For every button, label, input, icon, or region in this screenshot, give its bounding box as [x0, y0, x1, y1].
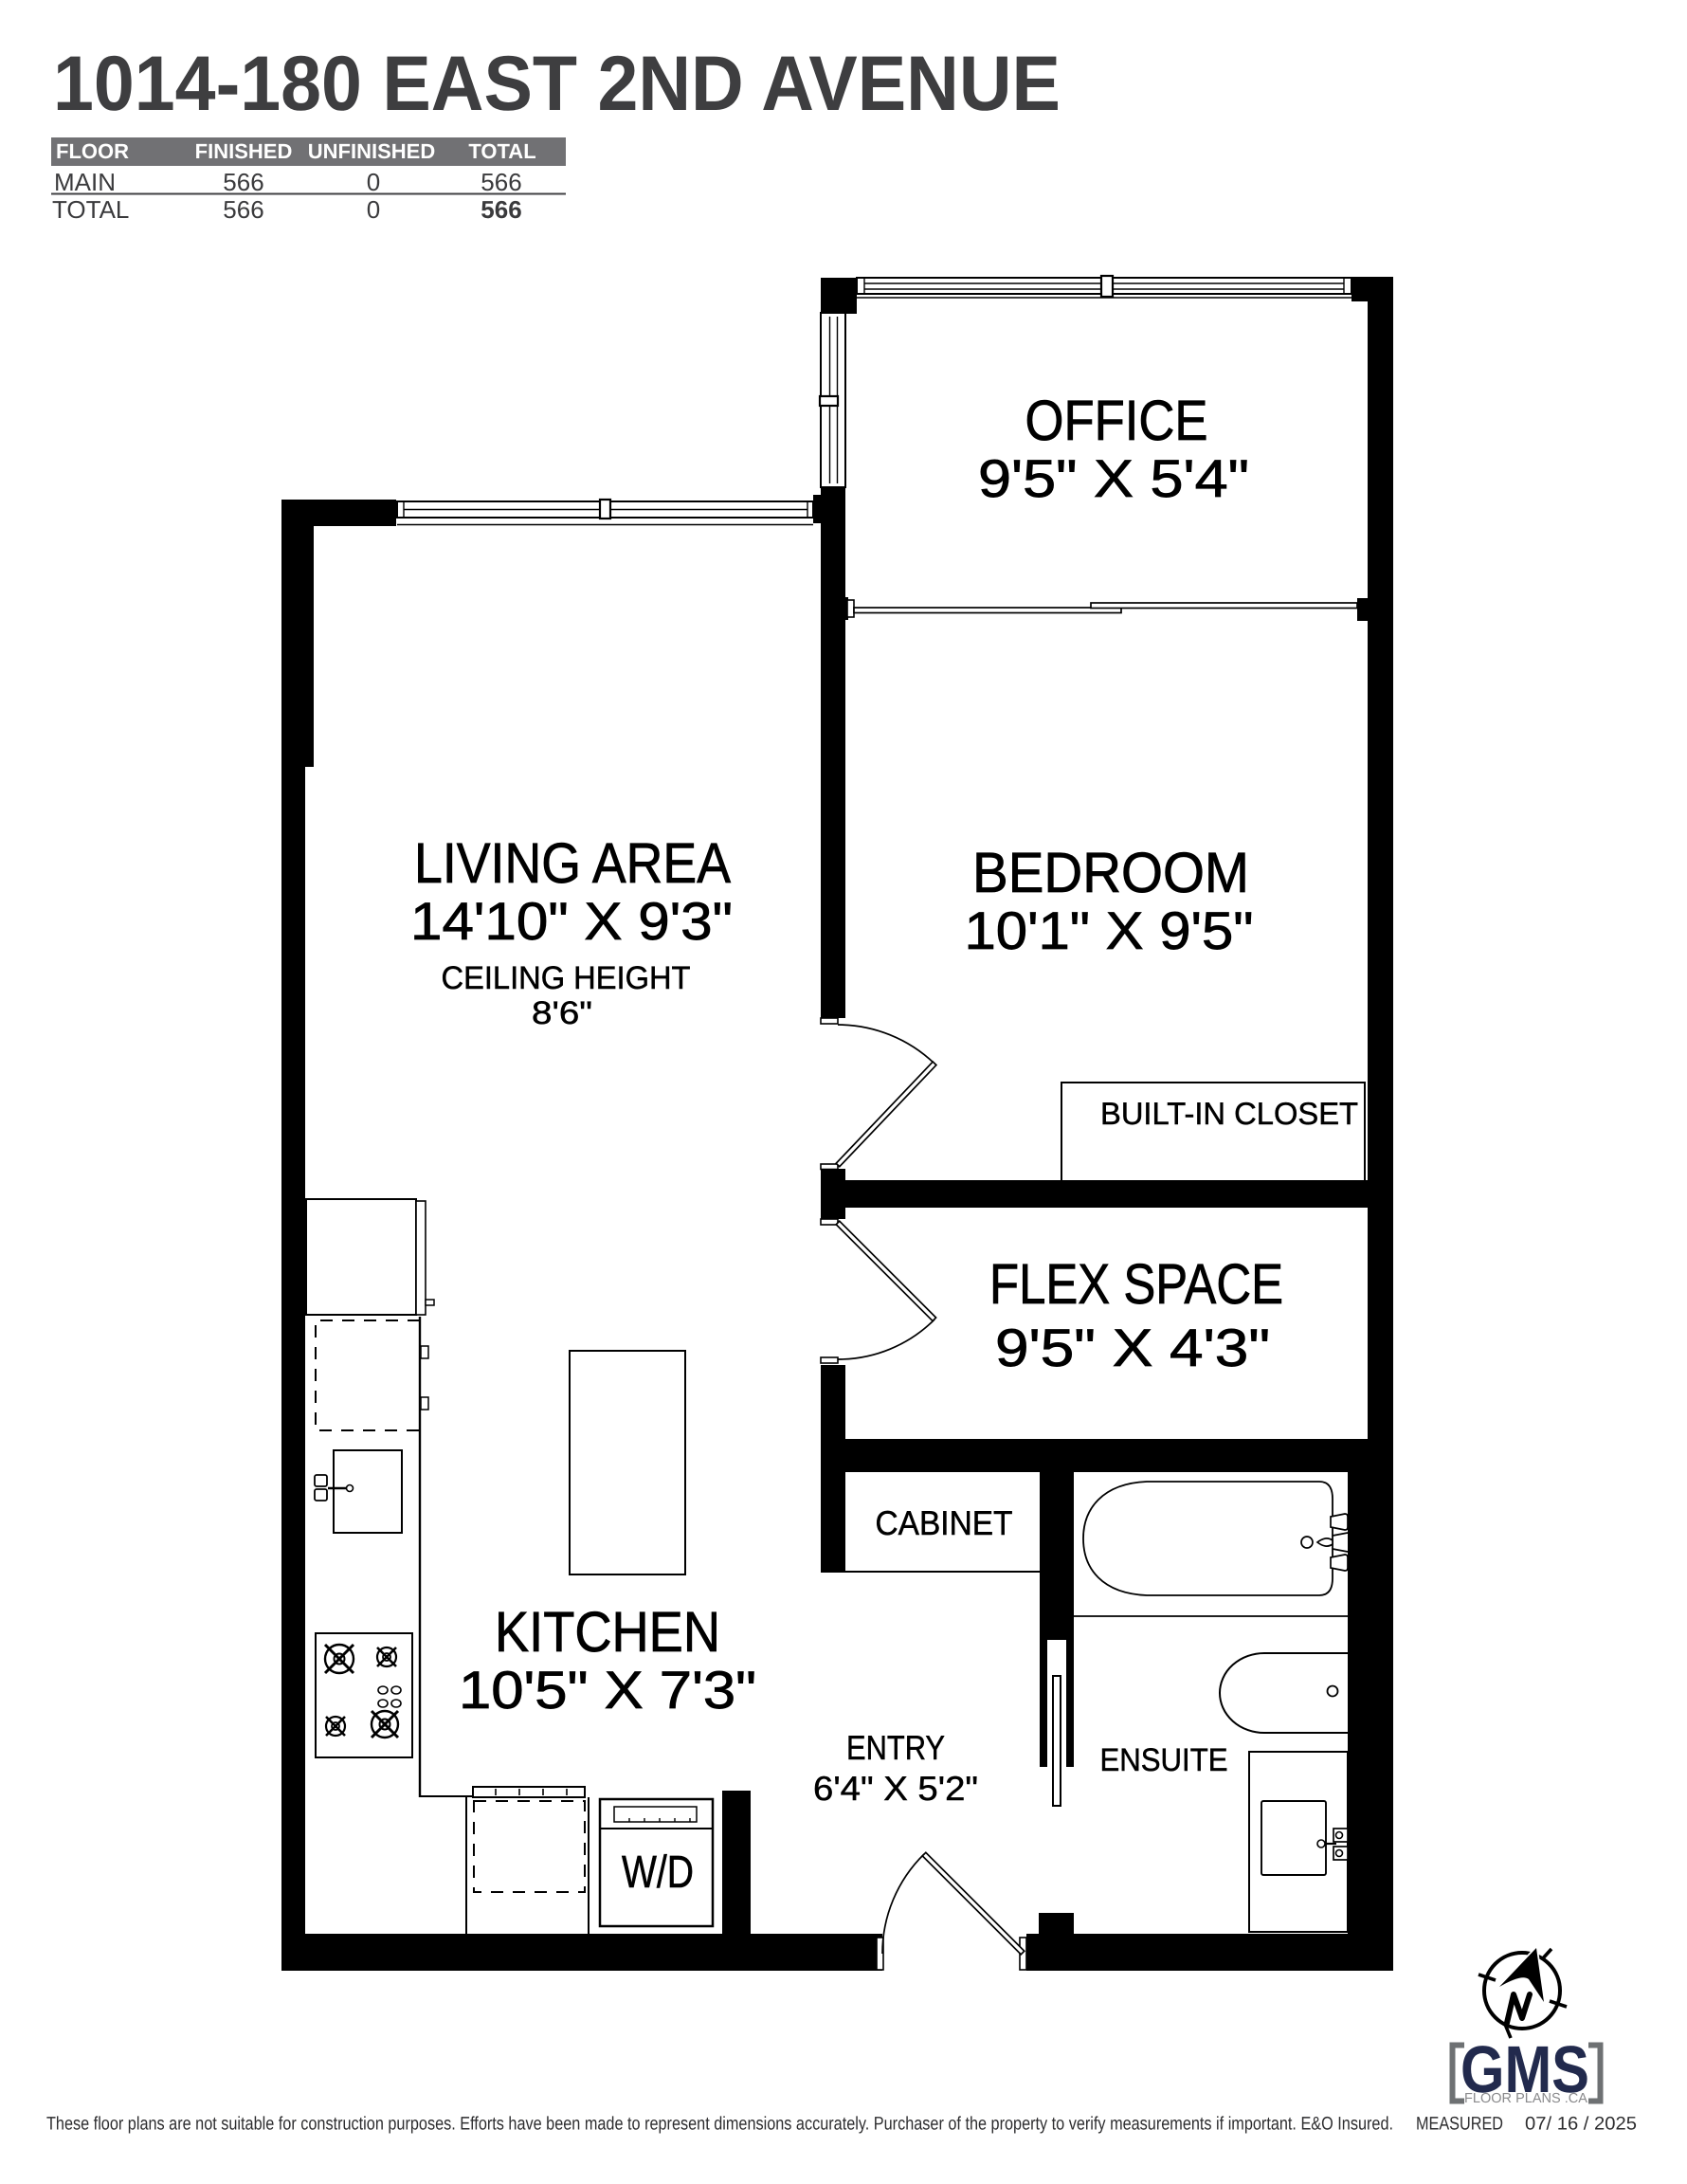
svg-text:9'5" X 5'4": 9'5" X 5'4"	[978, 448, 1249, 508]
svg-text:These floor plans are not suit: These floor plans are not suitable for c…	[46, 2114, 1393, 2135]
svg-text:566: 566	[223, 168, 263, 196]
svg-text:0: 0	[367, 168, 380, 196]
svg-text:8'6": 8'6"	[532, 995, 592, 1031]
svg-text:UNFINISHED: UNFINISHED	[308, 139, 435, 163]
svg-text:10'1" X 9'5": 10'1" X 9'5"	[965, 901, 1254, 960]
svg-text:566: 566	[481, 168, 521, 196]
svg-text:10'5" X 7'3": 10'5" X 7'3"	[459, 1660, 756, 1720]
svg-text:14'10" X 9'3": 14'10" X 9'3"	[410, 891, 733, 951]
svg-text:CABINET: CABINET	[876, 1503, 1013, 1542]
svg-text:MAIN: MAIN	[54, 168, 116, 196]
svg-text:566: 566	[223, 195, 263, 224]
svg-text:07/ 16 / 2025: 07/ 16 / 2025	[1525, 2114, 1637, 2135]
svg-text:1014-180 EAST 2ND AVENUE: 1014-180 EAST 2ND AVENUE	[53, 41, 1061, 127]
svg-text:FINISHED: FINISHED	[195, 139, 293, 163]
svg-text:KITCHEN: KITCHEN	[495, 1600, 720, 1664]
svg-text:OFFICE: OFFICE	[1025, 389, 1208, 452]
svg-text:ENTRY: ENTRY	[846, 1728, 945, 1767]
svg-text:566: 566	[481, 195, 521, 224]
svg-text:FLEX SPACE: FLEX SPACE	[989, 1252, 1283, 1316]
svg-text:6'4" X 5'2": 6'4" X 5'2"	[813, 1769, 978, 1808]
svg-text:ENSUITE: ENSUITE	[1100, 1742, 1228, 1778]
svg-text:FLOOR PLANS .CA: FLOOR PLANS .CA	[1464, 2091, 1587, 2106]
svg-text:0: 0	[367, 195, 380, 224]
svg-text:CEILING HEIGHT: CEILING HEIGHT	[442, 960, 691, 996]
svg-text:TOTAL: TOTAL	[52, 195, 129, 224]
svg-text:W/D: W/D	[622, 1847, 694, 1898]
svg-text:LIVING AREA: LIVING AREA	[414, 831, 731, 895]
svg-text:BUILT-IN CLOSET: BUILT-IN CLOSET	[1100, 1096, 1358, 1131]
svg-text:TOTAL: TOTAL	[468, 139, 535, 163]
svg-text:BEDROOM: BEDROOM	[972, 841, 1249, 904]
svg-text:9'5" X 4'3": 9'5" X 4'3"	[995, 1318, 1270, 1377]
svg-text:FLOOR: FLOOR	[56, 139, 129, 163]
svg-text:MEASURED: MEASURED	[1416, 2114, 1503, 2135]
